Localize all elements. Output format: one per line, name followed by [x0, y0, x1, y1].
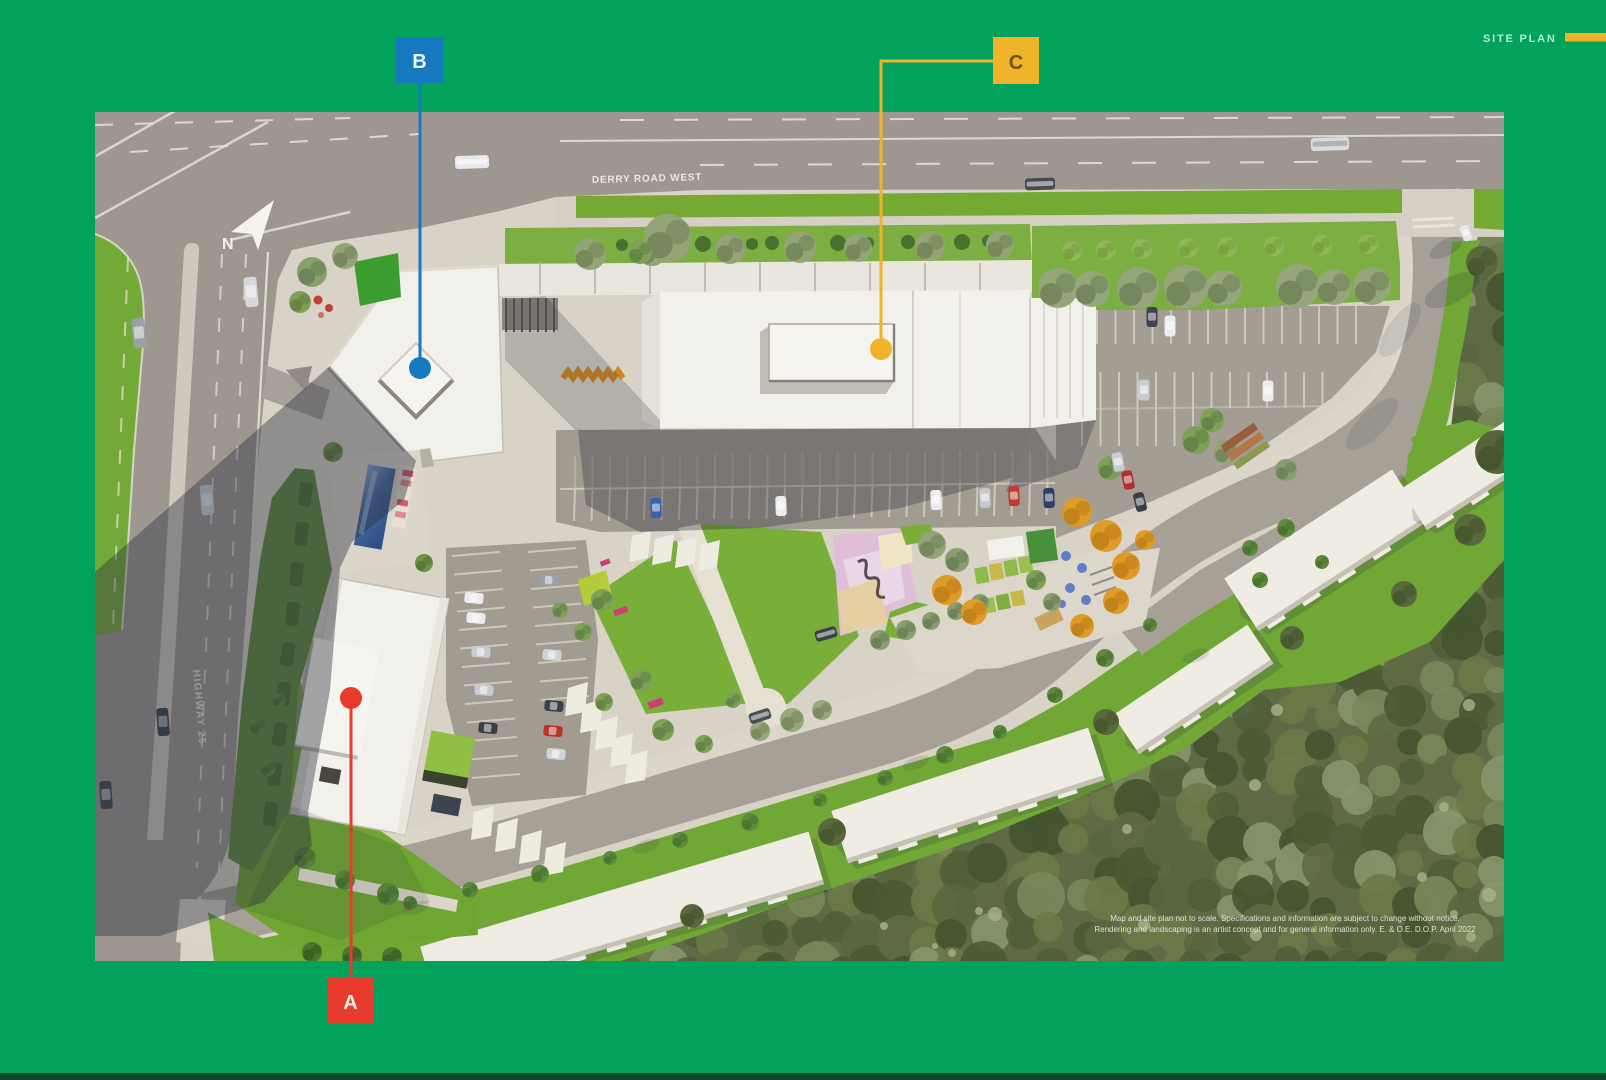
- svg-text:Map and site plan not to scale: Map and site plan not to scale. Specific…: [1110, 914, 1460, 923]
- svg-text:SITE PLAN: SITE PLAN: [1483, 33, 1557, 45]
- svg-text:N: N: [222, 236, 234, 253]
- svg-text:A: A: [343, 992, 357, 1014]
- svg-text:C: C: [1009, 52, 1023, 74]
- svg-text:Rendering and landscaping is a: Rendering and landscaping is an artist c…: [1094, 925, 1476, 934]
- svg-text:B: B: [412, 51, 426, 73]
